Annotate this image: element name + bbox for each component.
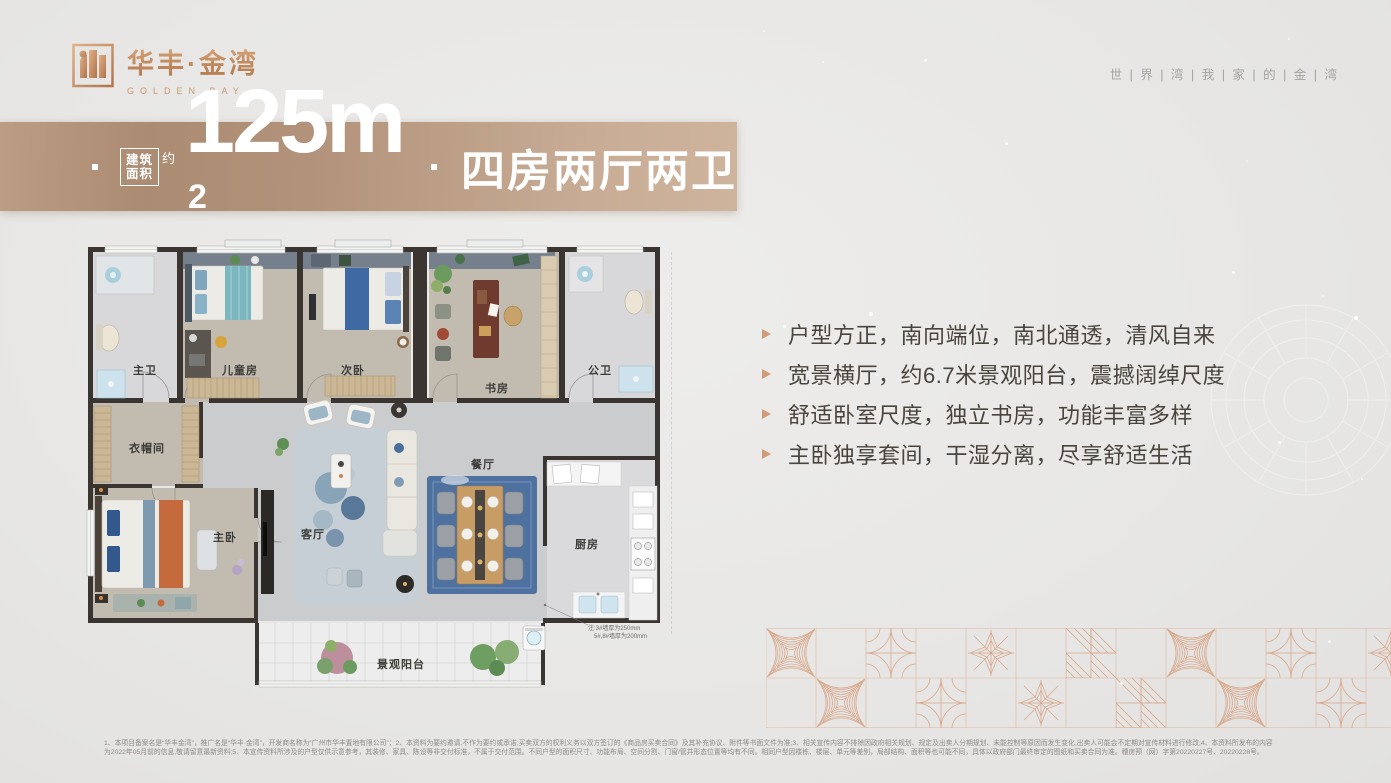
highlight-item: 舒适卧室尺度，独立书房，功能丰富多样: [762, 394, 1225, 434]
area-number: 125m: [185, 72, 403, 172]
sparkle-dot: [1361, 478, 1363, 480]
area-label-box: 建筑 面积: [120, 148, 159, 186]
dimension-line: [671, 252, 672, 634]
disclaimer: 1、本项目备案名是“华丰金湾”，推广名是“华丰·金湾”，开发商名称为“广州市华丰…: [104, 740, 1334, 758]
highlight-text: 户型方正，南向端位，南北通透，清风自来: [788, 318, 1216, 350]
sparkle-dot: [1354, 316, 1358, 320]
room-label-dining: 餐厅: [470, 457, 495, 471]
sparkle-dot: [1232, 271, 1235, 274]
highlight-text: 宽景横厅，约6.7米景观阳台，震撼阔绰尺度: [788, 358, 1225, 390]
triangle-bullet-icon: [762, 369, 771, 379]
layout-title: 四房两厅两卫: [461, 135, 737, 199]
sparkle-dot: [1322, 295, 1324, 297]
note-line1: 注:3#墙厚为250mm: [588, 624, 640, 632]
mandala-ornament-icon: [1206, 300, 1391, 500]
room-label-balcony: 景观阳台: [376, 657, 425, 671]
disclaimer-line1: 1、本项目备案名是“华丰金湾”，推广名是“华丰·金湾”，开发商名称为“广州市华丰…: [104, 740, 1334, 749]
highlight-list: 户型方正，南向端位，南北通透，清风自来 宽景横厅，约6.7米景观阳台，震撼阔绰尺…: [762, 314, 1225, 474]
brand-logo-icon: [72, 42, 114, 88]
sparkle-dot: [1005, 142, 1008, 145]
room-label-kids-room: 儿童房: [221, 363, 258, 377]
sparkle-dot: [1120, 682, 1123, 685]
area-superscript: 2: [188, 180, 207, 214]
area-value: 125m2: [185, 77, 405, 257]
area-label-line2: 面积: [121, 167, 158, 181]
sparkle-dot: [822, 61, 824, 63]
sparkle-dot: [924, 59, 927, 62]
sparkle-dot: [1246, 160, 1248, 162]
triangle-bullet-icon: [762, 449, 771, 459]
room-label-study: 书房: [485, 381, 509, 395]
room-label-master-bed: 主卧: [213, 530, 237, 544]
room-label-kitchen: 厨房: [575, 537, 599, 551]
room-label-master-bath: 主卫: [133, 363, 157, 377]
sparkle-dot: [869, 312, 873, 316]
room-label-living: 客厅: [300, 527, 325, 541]
approx-label: 约: [162, 148, 175, 167]
decorative-tile-pattern: [766, 628, 1391, 728]
sparkle-dot: [1278, 441, 1281, 444]
room-label-second-bed: 次卧: [341, 363, 365, 377]
room-label-cloakroom: 衣帽间: [129, 441, 165, 455]
highlight-text: 主卧独享套间，干湿分离，尽享舒适生活: [788, 438, 1193, 470]
highlight-item: 户型方正，南向端位，南北通透，清风自来: [762, 314, 1225, 354]
sparkle-dot: [783, 325, 786, 328]
floorplan: 主卫 儿童房 次卧 书房 公卫 衣帽间 主卧 客厅 餐厅 厨房 景观阳台 注:3…: [85, 238, 665, 708]
triangle-bullet-icon: [762, 409, 771, 419]
sparkle-dot: [763, 30, 765, 32]
dot-separator: [92, 164, 98, 170]
note-line2: 5#,8#墙厚为200mm: [594, 632, 647, 640]
disclaimer-line2: 为2022年05月前的信息,敬请留意最新资料;5、本宣传资料所涉及的户型仅供示意…: [104, 749, 1334, 758]
highlight-item: 主卧独享套间，干湿分离，尽享舒适生活: [762, 434, 1225, 474]
sparkle-dot: [1328, 640, 1331, 643]
dining-furniture: [427, 475, 537, 594]
triangle-bullet-icon: [762, 329, 771, 339]
highlight-text: 舒适卧室尺度，独立书房，功能丰富多样: [788, 398, 1193, 430]
area-label-line1: 建筑: [121, 153, 158, 167]
brand-slogan: 世 | 界 | 湾 | 我 | 家 | 的 | 金 | 湾: [1110, 64, 1339, 83]
sparkle-dot: [1288, 38, 1290, 40]
sparkle-dot: [876, 374, 878, 376]
title-banner: 建筑 面积 约 125m2 四房两厅两卫: [0, 122, 737, 211]
poster-page: 华丰·金湾 GOLDEN BAY 世 | 界 | 湾 | 我 | 家 | 的 |…: [0, 0, 1391, 783]
room-label-guest-bath: 公卫: [588, 364, 612, 377]
highlight-item: 宽景横厅，约6.7米景观阳台，震撼阔绰尺度: [762, 354, 1225, 394]
dot-separator: [431, 164, 437, 170]
